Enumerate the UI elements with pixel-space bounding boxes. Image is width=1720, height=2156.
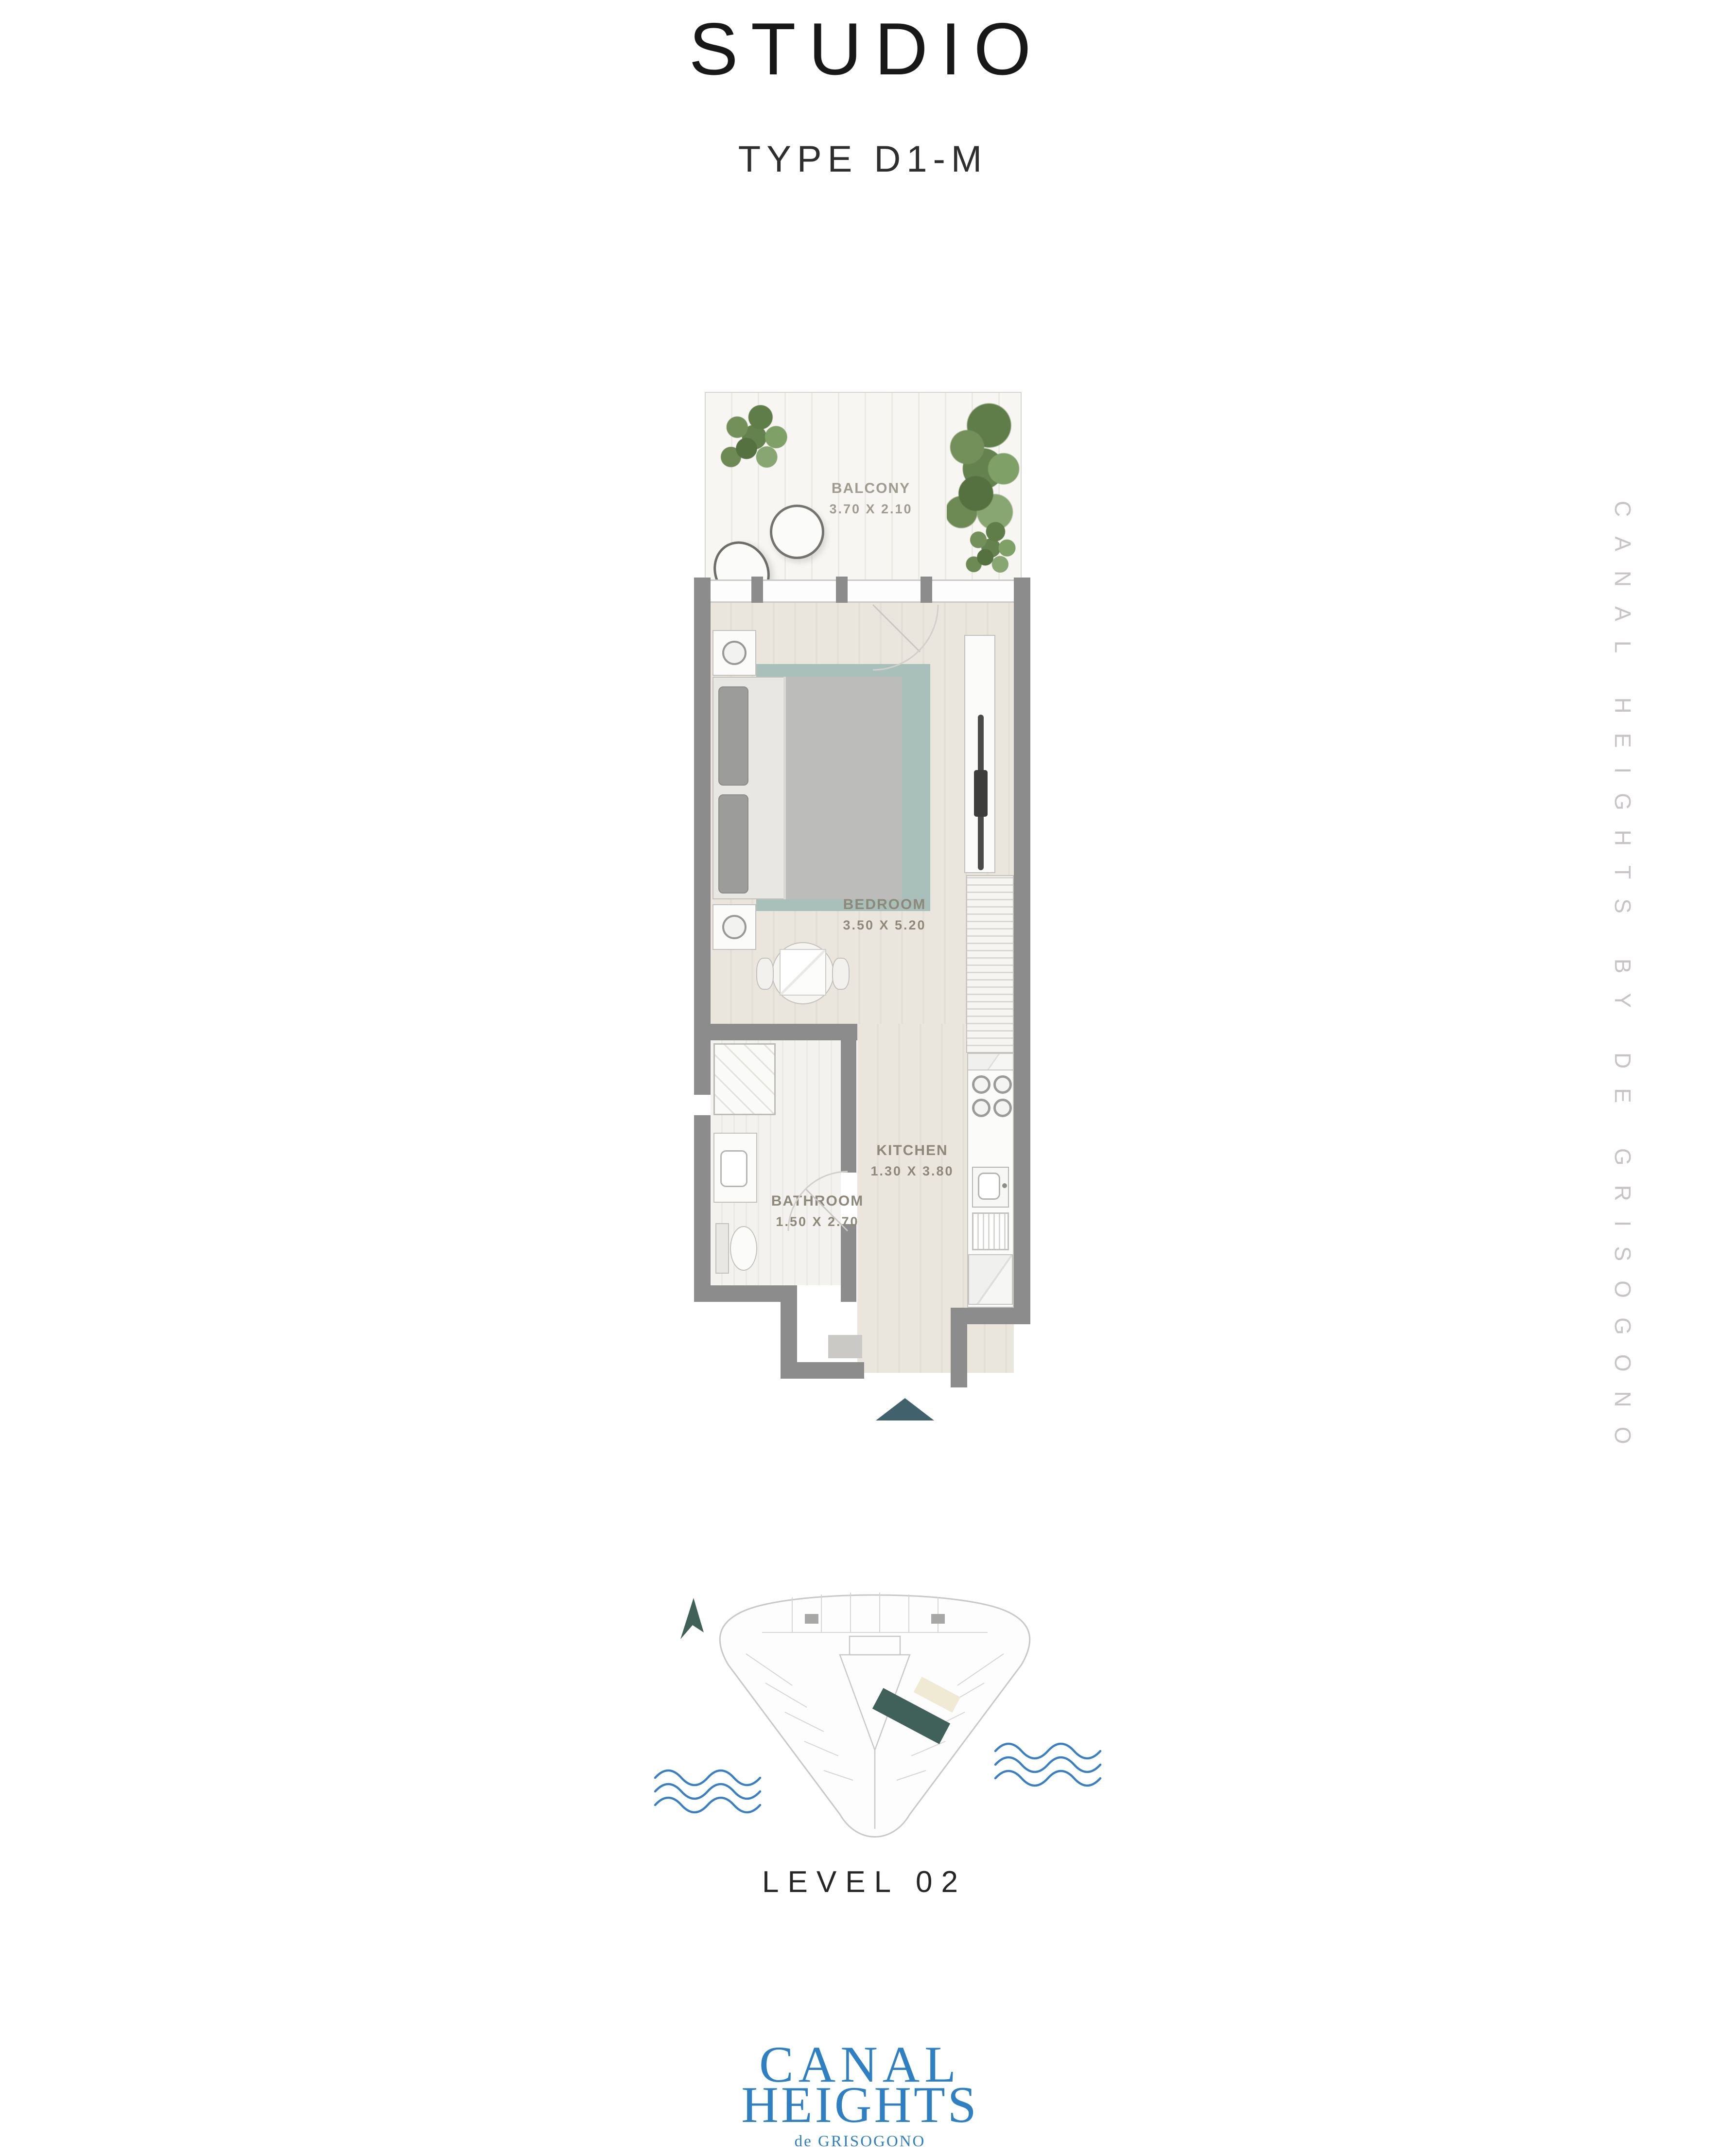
level-label: LEVEL 02 — [0, 1865, 1720, 1899]
logo-line-2: HEIGHTS — [0, 2085, 1720, 2125]
logo-line-3: de GRISOGONO — [0, 2134, 1720, 2150]
north-arrow-icon — [680, 1598, 704, 1639]
key-plan — [646, 1586, 1113, 1858]
brand-logo: CANAL HEIGHTS de GRISOGONO — [0, 2045, 1720, 2150]
